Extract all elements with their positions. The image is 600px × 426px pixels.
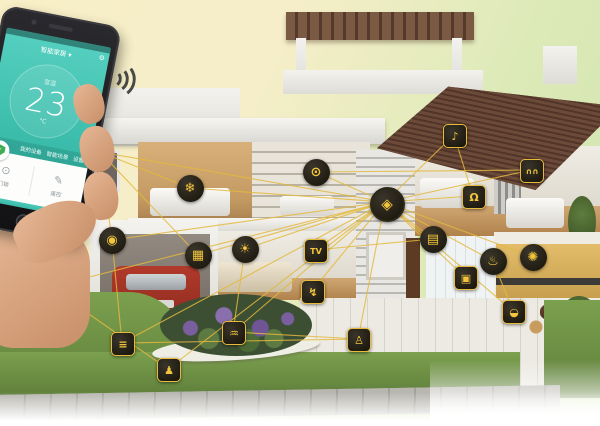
phone-front-camera	[31, 19, 37, 25]
shield-icon: ✓	[0, 143, 6, 157]
smart-gateway-icon[interactable]: ◈	[370, 187, 405, 222]
stair-window	[366, 232, 406, 280]
temperature-unit: °C	[38, 117, 46, 125]
garden-watering-icon[interactable]: ♒	[222, 321, 246, 345]
chimney	[543, 46, 577, 84]
curtains-icon[interactable]: ∩∩	[520, 159, 544, 183]
door-lock-icon[interactable]: Ω	[462, 185, 486, 209]
lock-icon: ⊙	[0, 163, 12, 178]
lighting-icon[interactable]: ☀	[232, 236, 259, 263]
ac-control-icon[interactable]: ❄	[177, 175, 204, 202]
smart-home-scene: ❄⊙♪∩∩Ω◈▤▦☀TV◉☝≡♟♒↯♙▣♨✺◒ 智能家居 ▾ ⚙ 室温 23 °…	[0, 0, 600, 426]
irrigation-sprinkler-icon[interactable]: ♟	[157, 358, 181, 382]
quick-action-remote-label: 遥控	[50, 189, 62, 199]
hall-door	[406, 238, 420, 302]
car-rear-window	[126, 274, 186, 290]
menu-item-scenes[interactable]: 智能场景	[46, 149, 69, 161]
power-socket-icon[interactable]: ▤	[420, 226, 447, 253]
bedroom-right-sofa	[506, 198, 564, 228]
washing-machine-icon[interactable]: ⊙	[303, 159, 330, 186]
quick-action-lock-label: 门锁	[0, 179, 10, 189]
pergola-roof	[286, 12, 474, 40]
phone-earpiece	[49, 24, 73, 33]
water-heater-icon[interactable]: ▣	[454, 266, 478, 290]
switch-panel-icon[interactable]: ▦	[185, 242, 212, 269]
garage-door-icon[interactable]: ≡	[111, 332, 135, 356]
menu-item-devices[interactable]: 我的设备	[19, 144, 42, 156]
kitchen-counter	[496, 278, 600, 285]
study-desk	[280, 196, 334, 216]
rice-cooker-icon[interactable]: ◒	[502, 300, 526, 324]
security-camera-icon[interactable]: ◉	[99, 227, 126, 254]
upper-roof-slab	[95, 118, 385, 144]
exhaust-fan-icon[interactable]: ✺	[520, 244, 547, 271]
pencil-icon: ✎	[53, 173, 65, 188]
doorbell-icon[interactable]: ♪	[443, 124, 467, 148]
temperature-value: 23	[22, 83, 70, 123]
outdoor-socket-icon[interactable]: ↯	[301, 280, 325, 304]
kitchen-cabinets	[496, 244, 600, 298]
tv-icon[interactable]: TV	[304, 239, 328, 263]
caret-down-icon: ▾	[68, 50, 73, 58]
settings-gear-icon[interactable]: ⚙	[98, 54, 106, 63]
kitchen-faucet-icon[interactable]: ♨	[480, 248, 507, 275]
right-fade	[430, 360, 600, 426]
motion-sensor-icon[interactable]: ♙	[347, 328, 371, 352]
